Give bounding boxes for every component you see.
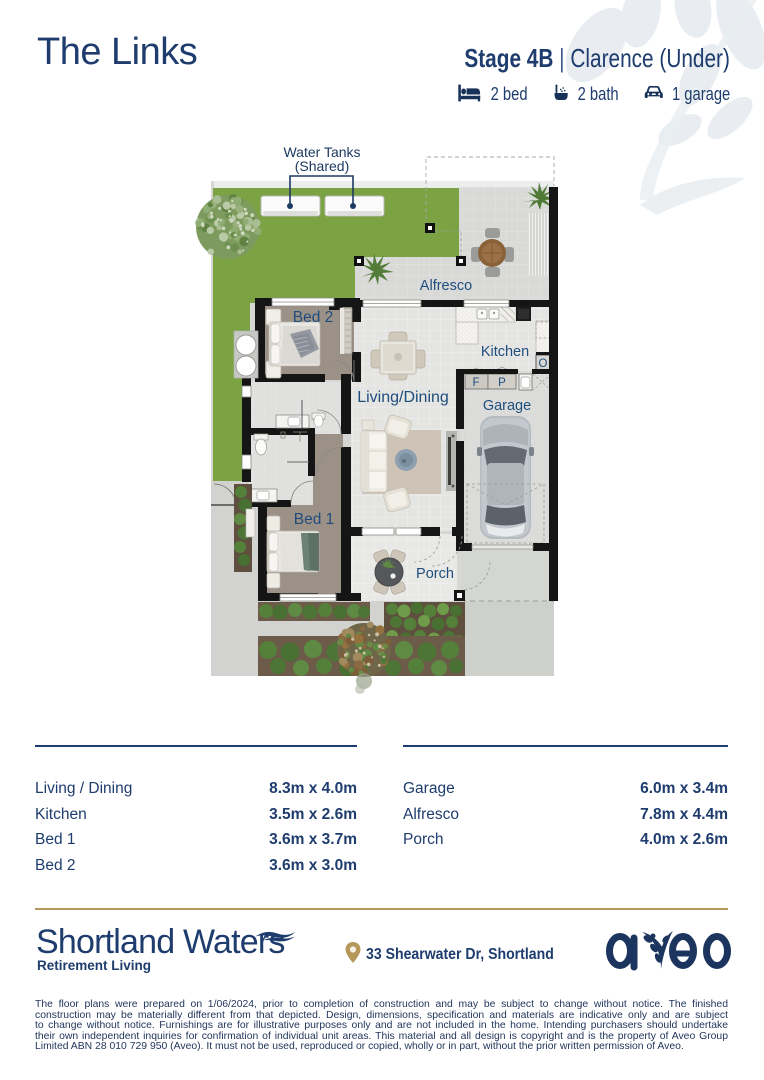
svg-text:Living/Dining: Living/Dining: [357, 389, 449, 406]
svg-text:O: O: [539, 358, 548, 370]
svg-text:F: F: [472, 377, 479, 389]
svg-text:Kitchen: Kitchen: [481, 344, 529, 360]
svg-text:Alfresco: Alfresco: [420, 278, 472, 294]
svg-text:P: P: [498, 377, 506, 389]
svg-text:Garage: Garage: [483, 398, 531, 414]
svg-text:Porch: Porch: [416, 566, 454, 582]
svg-text:Bed 1: Bed 1: [294, 511, 335, 528]
svg-text:(Shared): (Shared): [295, 158, 349, 174]
svg-text:Bed 2: Bed 2: [293, 309, 334, 326]
